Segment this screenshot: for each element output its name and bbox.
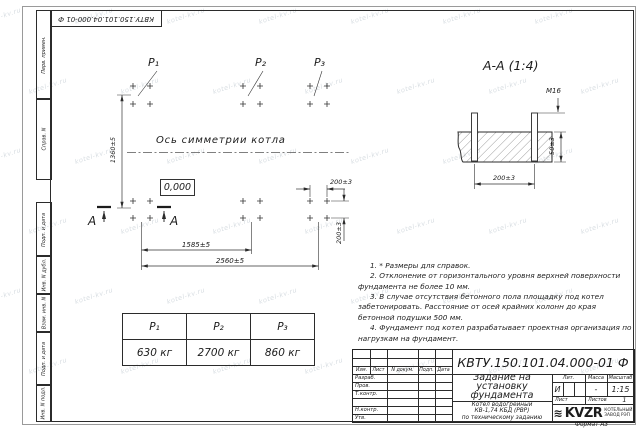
kvzr-logo-text: KVZR <box>565 406 603 421</box>
col-podp: Подп. <box>418 366 435 374</box>
kvzr-spring-icon: ≋ <box>554 407 563 420</box>
document-title-line: фундамента <box>471 392 534 401</box>
dim-50-depth: 50±3 <box>548 128 556 164</box>
load-table-value: 630 кг <box>123 340 187 366</box>
col-izm: Изм. <box>353 366 370 374</box>
title-block-designation: КВТУ.150.101.04.000-01 Ф <box>452 350 634 374</box>
load-table: P₁ P₂ P₃ 630 кг 2700 кг 860 кг <box>122 313 315 366</box>
row-prov: Пров. <box>353 382 389 390</box>
anchor-bolt-right <box>532 113 538 161</box>
format-label: Формат А3 <box>575 422 608 428</box>
load-table-header: P₂ <box>187 314 251 340</box>
section-letter-right: A <box>170 214 178 228</box>
dim-200-section: 200±3 <box>487 174 521 182</box>
note-1: 1. * Размеры для справок. <box>358 261 632 271</box>
anchor-bolt-marks <box>130 83 330 221</box>
masshtab-value: 1:15 <box>607 382 634 396</box>
dim-2560: 2560±5 <box>200 257 260 265</box>
load-table-header: P₁ <box>123 314 187 340</box>
thread-label-m16: М16 <box>546 87 561 95</box>
anchor-bolt-left <box>472 113 478 161</box>
load-table-header: P₃ <box>251 314 315 340</box>
title-block: КВТУ.150.101.04.000-01 Ф Изм. Лист N док… <box>352 349 635 423</box>
load-table-header-row: P₁ P₂ P₃ <box>123 314 315 340</box>
note-3: 3. В случае отсутствия бетонного пола пл… <box>358 292 632 323</box>
col-data: Дата <box>435 366 452 374</box>
product-description: Котел водогрейный КВ-1,74 КБД (РВР) по т… <box>452 401 552 422</box>
load-point-label-p3: P₃ <box>314 56 325 69</box>
col-n-dokum: N докум. <box>387 366 418 374</box>
section-letter-left: A <box>88 214 96 228</box>
document-title: Задание на установку фундамента <box>452 374 552 401</box>
listov-value: 1 <box>615 396 634 404</box>
lit-label: Лит. <box>552 374 585 382</box>
note-4: 4. Фундамент под котел разрабатывает про… <box>358 323 632 344</box>
dim-1585: 1585±5 <box>166 241 226 249</box>
load-point-label-p1: P₁ <box>148 56 159 69</box>
load-table-value: 860 кг <box>251 340 315 366</box>
massa-value: - <box>585 382 607 396</box>
kvzr-logo-subtext: КОТЕЛЬНЫЙ ЗАВОД РЭП <box>604 408 632 418</box>
load-table-value: 2700 кг <box>187 340 251 366</box>
row-razrab: Разраб. <box>353 374 389 382</box>
row-t-kontr: Т.контр. <box>353 390 389 398</box>
dim-200-pair-vertical: 200±3 <box>335 215 343 251</box>
row-utv: Утв. <box>353 414 389 422</box>
massa-label: Масса <box>585 374 607 382</box>
load-point-leaders <box>138 71 322 96</box>
symmetry-axis-label: Ось симметрии котла <box>156 135 286 146</box>
lit-value: И <box>552 382 563 396</box>
kvzr-logo-subline: ЗАВОД РЭП <box>604 413 632 418</box>
level-mark-value: 0,000 <box>164 182 191 193</box>
note-2: 2. Отклонение от горизонтального уровня … <box>358 271 632 292</box>
company-logo-cell: ≋ KVZR КОТЕЛЬНЫЙ ЗАВОД РЭП <box>552 404 634 422</box>
section-title: А-А (1:4) <box>483 58 538 73</box>
row-n-kontr: Н.контр. <box>353 406 389 414</box>
load-point-label-p2: P₂ <box>255 56 266 69</box>
dim-200-pair-horizontal: 200±3 <box>330 178 364 186</box>
drawing-sheet: kotel-kv.rukotel-kv.rukotel-kv.rukotel-k… <box>0 0 644 430</box>
dim-1360: 1360±5 <box>109 131 117 169</box>
level-mark-box: 0,000 <box>160 179 195 196</box>
listov-label: Листов <box>585 396 618 404</box>
technical-notes: 1. * Размеры для справок. 2. Отклонение … <box>358 261 632 344</box>
col-list: Лист <box>370 366 387 374</box>
load-table-value-row: 630 кг 2700 кг 860 кг <box>123 340 315 366</box>
product-line: по техническому заданию <box>462 415 543 421</box>
list-label: Лист <box>552 396 588 404</box>
masshtab-label: Масштаб <box>607 374 634 382</box>
